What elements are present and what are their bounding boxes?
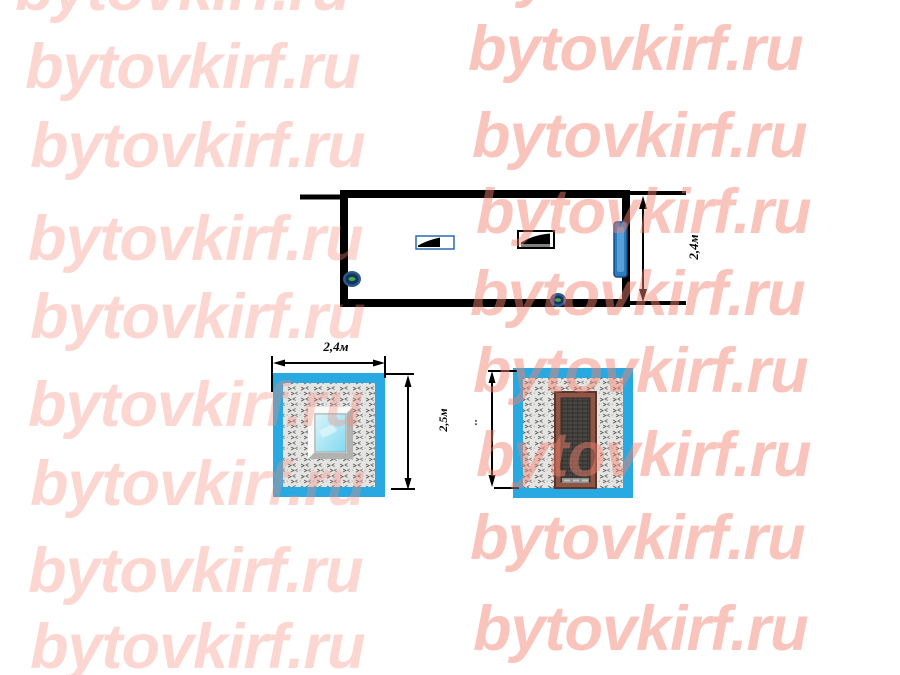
plan-window-symbol-left bbox=[416, 236, 454, 249]
plan-fixture-bottom bbox=[550, 293, 566, 307]
front-elevation: 2,4м 2,5м bbox=[272, 339, 450, 497]
watermarked-drawing-page: 2,4м bbox=[0, 0, 900, 675]
plan-walls bbox=[344, 194, 626, 303]
elevation-window bbox=[308, 407, 353, 459]
front-elevation-height-label: 2,5м bbox=[436, 408, 450, 432]
cabin-technical-drawing: 2,4м bbox=[0, 0, 900, 675]
floor-plan: 2,4м bbox=[300, 193, 701, 307]
plan-fixture-left bbox=[343, 271, 361, 287]
door-elevation-height-dimension: : bbox=[474, 371, 519, 488]
door-elevation: : bbox=[474, 368, 633, 498]
elevation-door bbox=[555, 392, 596, 488]
plan-window-symbol-right bbox=[518, 231, 554, 248]
front-elevation-width-label: 2,4м bbox=[322, 339, 348, 354]
plan-width-dimension: 2,4м bbox=[639, 196, 701, 302]
plan-width-label: 2,4м bbox=[686, 234, 701, 260]
door-panel bbox=[561, 398, 590, 482]
door-elevation-height-label: : bbox=[474, 416, 478, 428]
front-elevation-height-dimension: 2,5м bbox=[386, 374, 450, 490]
plan-door bbox=[614, 222, 627, 277]
